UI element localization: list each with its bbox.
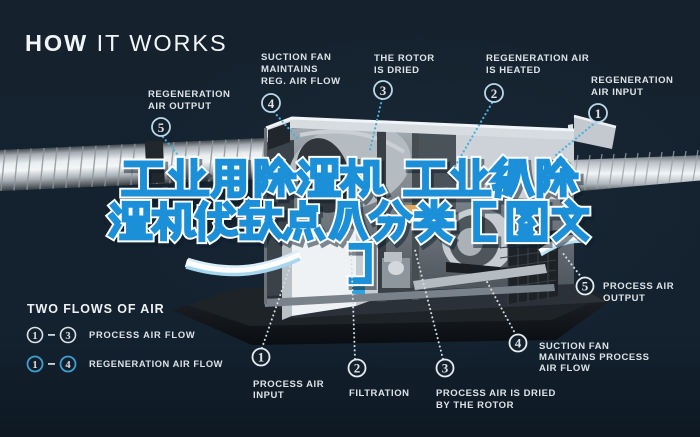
svg-text:IS DRIED: IS DRIED xyxy=(374,65,420,76)
svg-text:BY THE ROTOR: BY THE ROTOR xyxy=(436,400,514,411)
svg-text:INPUT: INPUT xyxy=(253,390,284,401)
svg-text:PROCESS AIR: PROCESS AIR xyxy=(253,379,324,390)
svg-text:4: 4 xyxy=(65,360,71,371)
svg-text:2: 2 xyxy=(354,361,361,376)
svg-text:PROCESS AIR: PROCESS AIR xyxy=(603,281,674,292)
svg-text:REGENERATION AIR FLOW: REGENERATION AIR FLOW xyxy=(89,359,223,369)
svg-text:HOW IT WORKS: HOW IT WORKS xyxy=(25,30,228,56)
svg-text:AIR INPUT: AIR INPUT xyxy=(591,87,643,98)
svg-text:OUTPUT: OUTPUT xyxy=(603,293,645,304)
svg-text:TWO FLOWS OF AIR: TWO FLOWS OF AIR xyxy=(27,302,165,316)
svg-text:4: 4 xyxy=(268,96,275,111)
svg-text:AIR FLOW: AIR FLOW xyxy=(539,363,590,374)
svg-text:MAINTAINS: MAINTAINS xyxy=(261,64,318,75)
svg-text:MAINTAINS PROCESS: MAINTAINS PROCESS xyxy=(539,352,650,363)
svg-text:5: 5 xyxy=(582,279,589,294)
svg-text:4: 4 xyxy=(515,336,522,351)
svg-text:THE ROTOR: THE ROTOR xyxy=(374,53,435,64)
svg-text:REGENERATION: REGENERATION xyxy=(148,89,230,100)
svg-text:2: 2 xyxy=(491,86,498,101)
svg-text:3: 3 xyxy=(442,361,449,376)
svg-text:AIR OUTPUT: AIR OUTPUT xyxy=(148,101,212,112)
svg-text:PROCESS AIR FLOW: PROCESS AIR FLOW xyxy=(89,330,195,340)
svg-text:1: 1 xyxy=(258,350,265,365)
svg-text:1: 1 xyxy=(595,106,602,121)
svg-text:SUCTION FAN: SUCTION FAN xyxy=(539,341,609,352)
svg-text:PROCESS AIR IS DRIED: PROCESS AIR IS DRIED xyxy=(436,388,556,399)
svg-text:3: 3 xyxy=(65,331,70,342)
svg-text:1: 1 xyxy=(32,360,37,371)
svg-text:SUCTION FAN: SUCTION FAN xyxy=(261,52,331,63)
svg-text:REGENERATION: REGENERATION xyxy=(591,75,673,86)
svg-text:REGENERATION AIR: REGENERATION AIR xyxy=(486,53,589,64)
svg-text:3: 3 xyxy=(380,83,387,98)
svg-text:REG. AIR FLOW: REG. AIR FLOW xyxy=(261,76,341,87)
svg-text:IS HEATED: IS HEATED xyxy=(486,65,541,76)
svg-text:5: 5 xyxy=(158,120,165,135)
svg-text:FILTRATION: FILTRATION xyxy=(349,388,410,399)
svg-text:1: 1 xyxy=(32,331,37,342)
